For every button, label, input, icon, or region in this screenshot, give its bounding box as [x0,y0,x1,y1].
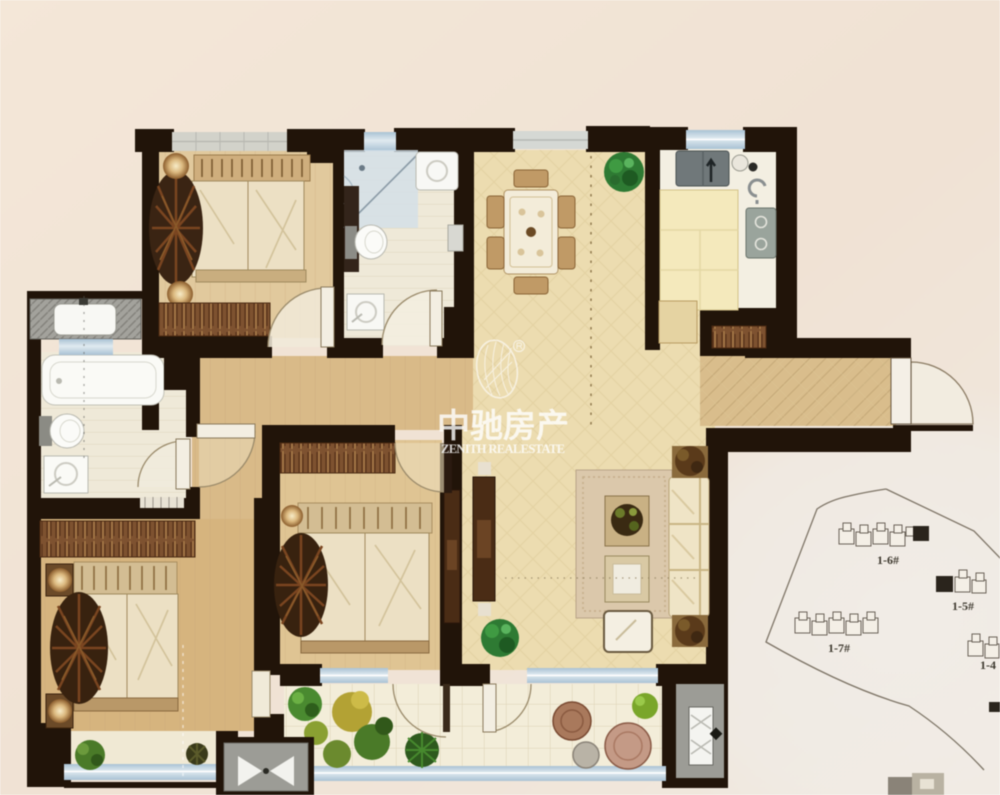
svg-text:ZENITH REALESTATE: ZENITH REALESTATE [441,442,565,456]
svg-text:1-4: 1-4 [980,658,996,672]
svg-text:中驰房产: 中驰房产 [437,407,569,444]
svg-text:1-5#: 1-5# [952,599,974,613]
svg-text:1-6#: 1-6# [877,553,899,567]
svg-text:1-7#: 1-7# [828,641,850,655]
